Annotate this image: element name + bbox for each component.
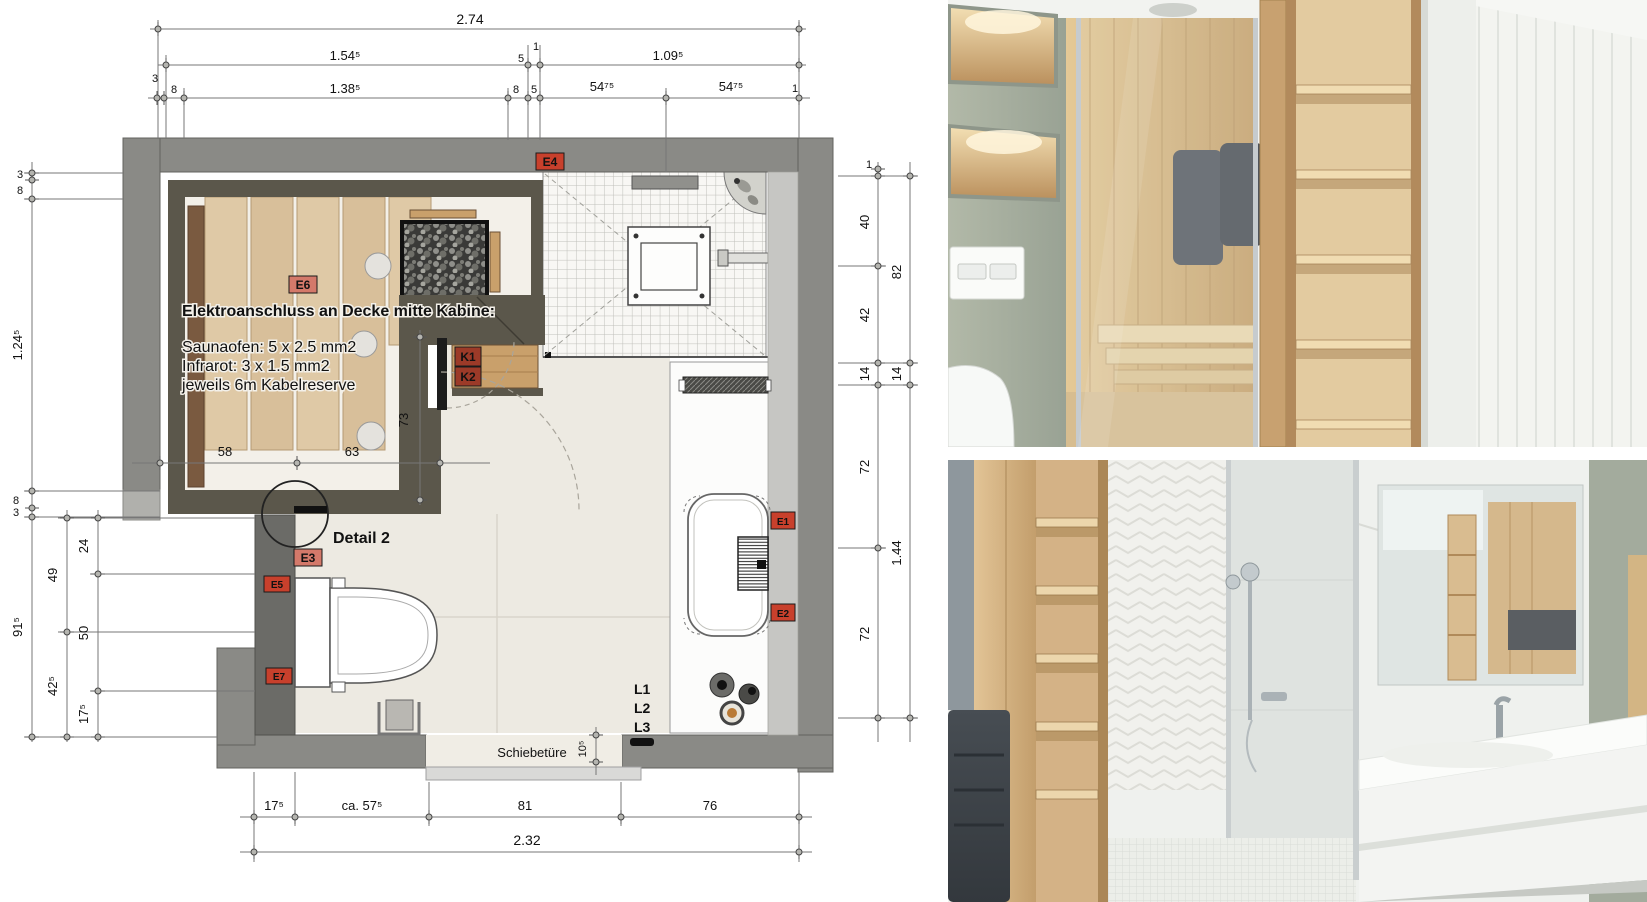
svg-text:24: 24 [76, 539, 91, 553]
sliding-door-panel [426, 767, 641, 780]
svg-text:E4: E4 [543, 155, 558, 169]
svg-text:1: 1 [792, 83, 798, 95]
svg-text:1.44: 1.44 [889, 540, 904, 565]
svg-text:54⁷⁵: 54⁷⁵ [719, 79, 744, 94]
svg-text:81: 81 [518, 798, 532, 813]
svg-text:1.54⁵: 1.54⁵ [330, 48, 361, 63]
svg-text:1: 1 [866, 159, 872, 171]
svg-text:2.74: 2.74 [456, 11, 483, 27]
svg-text:17⁵: 17⁵ [76, 704, 91, 724]
floor-plan: Detail 2 Schiebetüre L1 L2 L3 E6 E4 E3 E… [0, 0, 948, 902]
toilet-wall [255, 515, 295, 735]
wall-niche-lower [948, 124, 1060, 202]
glass-panel-edge-1 [1226, 460, 1231, 880]
towel-heater [948, 710, 1010, 902]
wall-niche-upper [948, 4, 1058, 88]
svg-text:73: 73 [396, 413, 411, 427]
sauna-light-3 [357, 422, 385, 450]
svg-text:ca. 57⁵: ca. 57⁵ [342, 798, 383, 813]
shower-mosaic-floor [1108, 838, 1356, 902]
tile-wall [1476, 0, 1647, 447]
glass-door [1076, 18, 1258, 447]
svg-text:E6: E6 [296, 278, 311, 292]
tag-e7: E7 [266, 668, 292, 684]
svg-text:3: 3 [152, 73, 158, 85]
svg-text:72: 72 [857, 627, 872, 641]
mirror-cabinet [1378, 485, 1583, 685]
sauna-door-gap [428, 345, 437, 408]
tag-e1: E1 [771, 512, 795, 529]
sauna-door-jamb [437, 338, 447, 410]
detail-2-label: Detail 2 [333, 530, 390, 547]
radiator [683, 377, 768, 393]
svg-text:1: 1 [533, 41, 539, 53]
screenshot-root: Detail 2 Schiebetüre L1 L2 L3 E6 E4 E3 E… [0, 0, 1647, 902]
svg-text:Elektroanschluss an Decke mitt: Elektroanschluss an Decke mitte Kabine: [182, 303, 495, 320]
white-wall [1421, 0, 1476, 447]
svg-text:10⁵: 10⁵ [577, 741, 589, 758]
svg-text:63: 63 [345, 444, 359, 459]
svg-text:jeweils 6m Kabelreserve: jeweils 6m Kabelreserve [181, 377, 356, 394]
mirror-wood-shelf [1448, 515, 1476, 680]
svg-text:14: 14 [857, 367, 872, 381]
svg-text:58: 58 [218, 444, 232, 459]
svg-text:8: 8 [17, 185, 23, 197]
wc-flush-plate [950, 247, 1024, 299]
svg-text:40: 40 [857, 215, 872, 229]
tag-e2: E2 [771, 604, 795, 621]
bathroom-render-photo [948, 460, 1647, 902]
sauna-light-1 [365, 253, 391, 279]
svg-text:Infrarot: 3 x 1.5 mm2: Infrarot: 3 x 1.5 mm2 [182, 358, 330, 375]
tag-k2: K2 [455, 367, 481, 386]
svg-text:50: 50 [76, 626, 91, 640]
glass-front-edge [294, 506, 327, 513]
shower-drain [628, 227, 710, 305]
svg-text:Saunaofen: 5 x 2.5 mm2: Saunaofen: 5 x 2.5 mm2 [182, 339, 356, 356]
svg-text:42: 42 [857, 308, 872, 322]
svg-text:3: 3 [17, 169, 23, 181]
svg-text:14: 14 [889, 367, 904, 381]
label-l2: L2 [634, 700, 651, 716]
tag-e4: E4 [536, 153, 564, 170]
svg-text:E2: E2 [777, 609, 790, 620]
svg-text:1.09⁵: 1.09⁵ [653, 48, 684, 63]
svg-text:72: 72 [857, 460, 872, 474]
svg-text:82: 82 [889, 265, 904, 279]
tag-e5: E5 [264, 576, 290, 592]
tag-e3: E3 [294, 549, 322, 566]
svg-text:5: 5 [531, 84, 537, 96]
sauna-render-photo [948, 0, 1647, 447]
right-wall-niche [1628, 555, 1647, 735]
label-l1: L1 [634, 681, 651, 697]
ceiling-spot-light [1149, 3, 1197, 17]
svg-text:49: 49 [45, 568, 60, 582]
svg-text:3: 3 [13, 507, 19, 519]
gray-wall [948, 460, 974, 710]
tag-e6: E6 [289, 276, 317, 293]
svg-text:91⁵: 91⁵ [10, 617, 25, 637]
bathtub [684, 494, 770, 636]
label-l-box [630, 738, 654, 746]
svg-text:5: 5 [518, 53, 524, 65]
svg-text:E5: E5 [271, 580, 284, 591]
shelf-unit [1286, 0, 1421, 447]
svg-text:E3: E3 [301, 551, 316, 565]
svg-text:2.32: 2.32 [513, 832, 540, 848]
shower-entry-mat [632, 176, 698, 189]
svg-text:1.38⁵: 1.38⁵ [330, 81, 361, 96]
open-shelf-unit [1036, 460, 1108, 902]
tag-k1: K1 [455, 347, 481, 366]
svg-text:K1: K1 [460, 350, 476, 364]
svg-text:1.24⁵: 1.24⁵ [10, 330, 25, 361]
glass-panel-edge-2 [1353, 460, 1359, 880]
wall-finish-band [768, 172, 798, 735]
sliding-door-label: Schiebetüre [497, 745, 566, 760]
wood-divider-column [1260, 0, 1286, 447]
wall-end-cap [123, 490, 160, 520]
svg-text:E1: E1 [777, 517, 790, 528]
svg-text:8: 8 [171, 84, 177, 96]
svg-text:E7: E7 [273, 672, 286, 683]
label-l3: L3 [634, 719, 651, 735]
svg-text:54⁷⁵: 54⁷⁵ [590, 79, 615, 94]
chevron-tile-wall [1108, 460, 1228, 790]
svg-text:42⁵: 42⁵ [45, 676, 60, 696]
svg-text:17⁵: 17⁵ [264, 798, 284, 813]
svg-text:76: 76 [703, 798, 717, 813]
svg-text:8: 8 [13, 495, 19, 507]
svg-text:K2: K2 [460, 370, 476, 384]
svg-text:8: 8 [513, 84, 519, 96]
